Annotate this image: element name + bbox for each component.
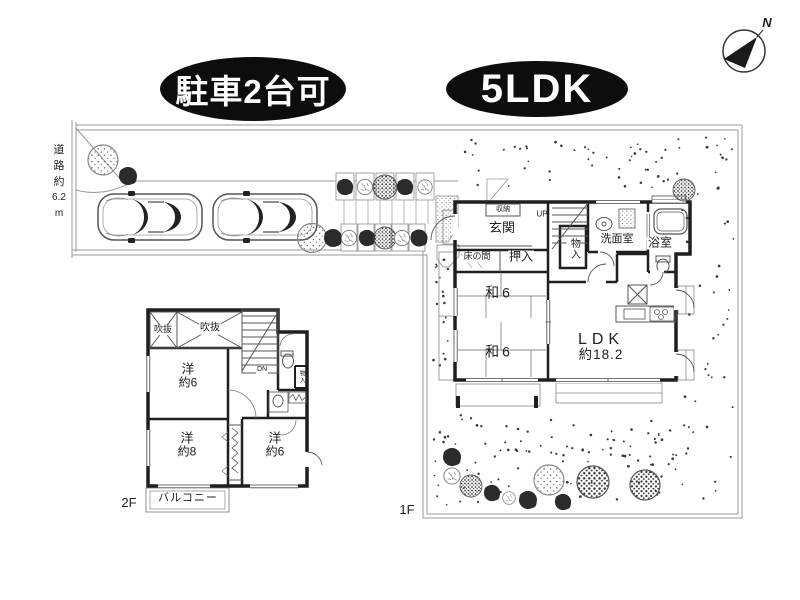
parking-badge-label: 駐車2台可 [175,65,330,113]
f1-tatami-room-2-label: 和6 [485,344,513,359]
f2-western-room-6a-label: 洋 約6 [179,363,198,390]
floorplan-page: 駐車2台可 5LDK N 道 路 約 6.2 m 収納 玄関 UP 物入 洗面室… [0,0,800,600]
floor2-plan [146,310,323,512]
f2-small-closet-label: 物入 [297,370,305,384]
planting-strip [298,173,435,253]
f2-western-room-8-label: 洋 約8 [178,432,197,459]
corner-trees [88,145,137,185]
f1-washroom-label: 洗面室 [600,234,635,246]
f1-closet-top-label: 収納 [495,206,511,214]
f1-oshiire-label: 押入 [508,251,534,264]
f1-stairs-up-label: UP [536,211,547,220]
f1-tatami-room-1-label: 和6 [485,285,513,300]
ldk-badge: 5LDK [446,61,628,117]
f2-stairs-down-label: DN [256,366,268,374]
f1-bathroom-label: 浴室 [647,237,673,250]
f2-western-room-6b-label: 洋 約6 [266,432,285,459]
floor1-tag: 1F [399,503,414,517]
f2-void-1-label: 吹抜 [153,325,173,335]
parking-car-1 [98,191,202,243]
f2-balcony-label: バルコニー [157,493,219,505]
compass-north-label: N [762,16,771,30]
floor1-plan [431,196,694,408]
parking-badge: 駐車2台可 [160,57,346,121]
f1-entrance-label: 玄関 [489,221,515,235]
f2-void-2-label: 吹抜 [199,324,221,335]
road-width-label: 道 路 約 6.2 m [47,142,71,222]
ldk-badge-label: 5LDK [481,67,593,112]
compass-icon [723,30,765,72]
floor2-tag: 2F [121,496,136,510]
f1-hall-closet-label: 物入 [567,238,580,260]
f1-ldk-label: LDK 約18.2 [578,331,624,363]
f1-tokonoma-label: 床の間 [462,252,491,262]
